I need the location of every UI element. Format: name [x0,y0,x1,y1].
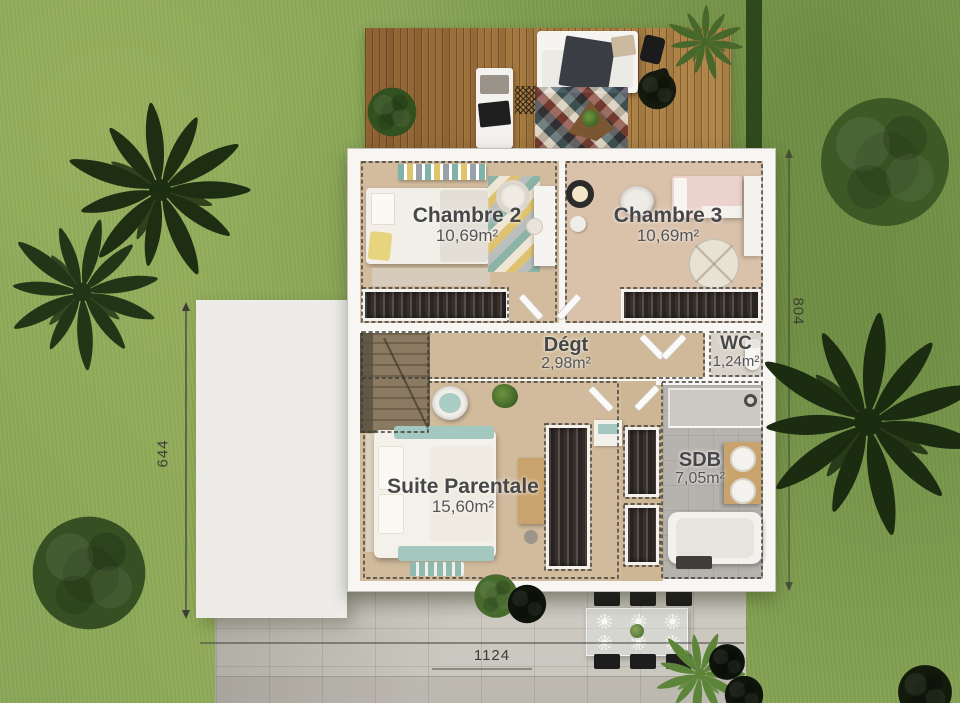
sofa-pillow [611,34,637,57]
bench-foot-of-bed [410,562,464,576]
room-area: 10,69m² [578,227,758,245]
palm-top-left-2 [0,194,180,388]
room-area: 10,69m² [377,227,557,245]
room-name: WC [701,334,771,354]
wall-sdb-top [656,377,763,385]
dimension-label-right: 804 [790,292,807,332]
stool-suite [524,530,538,544]
papasan-cushion-teal [439,393,461,413]
closet-chambre3 [621,289,761,321]
room-area: 2,98m² [496,356,636,373]
table-centerpiece-plant [630,624,644,638]
room-name: Dégt [496,335,636,356]
daybed-cushion-gray [480,75,509,94]
room-label-chambre2: Chambre 2 10,69m² [377,205,557,245]
staircase [360,333,430,433]
terrace-deck [365,28,731,148]
bench-corridor [594,420,622,446]
patio-chair [666,654,692,669]
bathtub-basin [676,518,754,558]
patio-chair [630,654,656,669]
corner-plant-bottom-right [898,665,952,703]
table-plant [582,110,599,127]
daybed-cushion-black [478,100,511,127]
closet-chambre2 [362,289,509,321]
chair-cushion-rosette [597,614,612,629]
bench-corridor-teal-cushion [598,424,618,434]
plant-suite [492,384,518,408]
room-label-suite-parentale: Suite Parentale 15,60m² [348,476,578,516]
room-label-wc: WC 1,24m² [701,334,771,370]
closet-corridor-bottom [625,505,659,565]
round-bush-bottom-left [33,517,146,630]
room-area: 15,60m² [348,498,578,516]
patio-chair [594,654,620,669]
patio-dining-table [586,608,688,656]
bed-suite-teal-runner-top [394,426,494,439]
round-tree-top-right [821,98,949,226]
bath-mat-sdb [676,556,712,569]
patio-chair [630,591,656,606]
closet-corridor-top [625,427,659,497]
patio-chair [594,591,620,606]
staircase-dark-stringer [360,333,373,433]
room-label-degt: Dégt 2,98m² [496,335,636,373]
bed-suite-teal-runner-bottom [398,546,494,561]
room-name: Chambre 3 [578,205,758,227]
room-name: Suite Parentale [348,476,578,498]
rug-chambre2-bedside [372,268,490,286]
palm-top-left-1 [67,102,251,278]
clothes-rack-chambre2 [398,164,486,180]
floor-lamp-chambre3 [566,180,594,208]
chair-cushion-rosette [665,635,680,650]
lounge-chair-dark-2 [645,67,675,98]
driveway-edge-band [216,676,746,703]
chair-cushion-rosette [597,635,612,650]
dimension-label-bottom: 1124 [455,647,529,664]
room-name: Chambre 2 [377,205,557,227]
lounge-chair-dark-1 [639,34,666,65]
room-area: 1,24m² [701,354,771,370]
metal-bistro-chair [515,86,537,114]
round-rug-chambre3 [688,238,740,290]
room-label-sdb: SDB 7,05m² [655,450,745,488]
sofa-throw-blanket [558,35,615,92]
shower-head [744,394,757,407]
room-area: 7,05m² [655,471,745,488]
room-name: SDB [655,450,745,471]
dimension-label-left: 644 [155,434,172,474]
room-label-chambre3: Chambre 3 10,69m² [578,205,758,245]
chair-cushion-rosette [665,614,680,629]
garage-roof [196,300,347,618]
patio-chair [666,591,692,606]
floor-plan-scene: Chambre 2 10,69m² Chambre 3 10,69m² Dégt… [0,0,960,703]
